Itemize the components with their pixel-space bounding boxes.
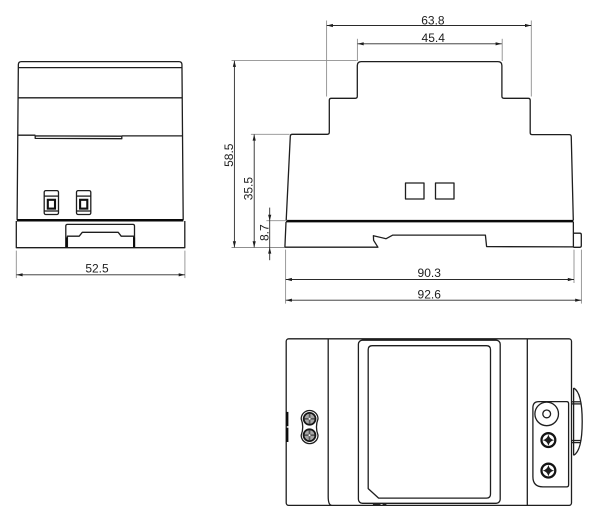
svg-text:63.8: 63.8 <box>421 13 445 27</box>
svg-text:58.5: 58.5 <box>222 143 236 167</box>
svg-text:92.6: 92.6 <box>418 287 442 301</box>
svg-text:45.4: 45.4 <box>422 31 446 45</box>
svg-text:35.5: 35.5 <box>242 177 256 201</box>
svg-text:90.3: 90.3 <box>418 266 442 280</box>
svg-text:52.5: 52.5 <box>85 262 109 276</box>
svg-text:8.7: 8.7 <box>257 224 271 241</box>
